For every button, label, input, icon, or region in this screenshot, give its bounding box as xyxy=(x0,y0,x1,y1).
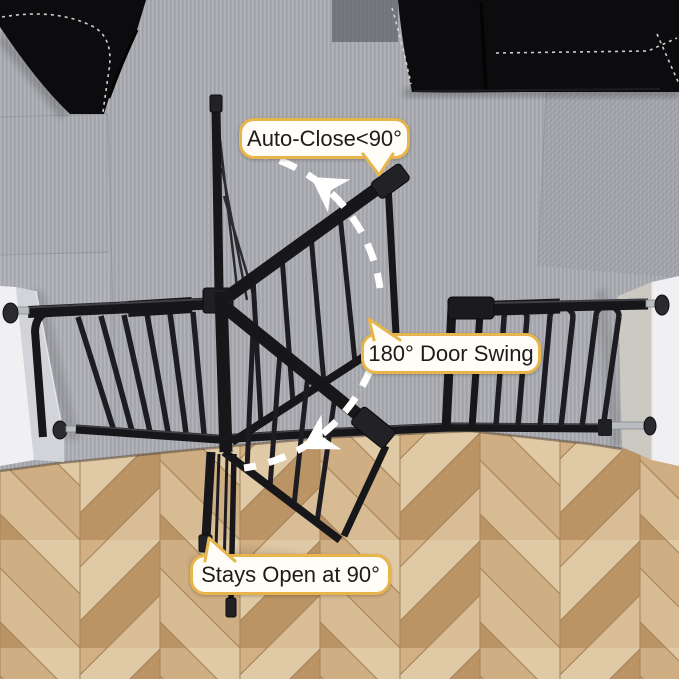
callout-tail-icon xyxy=(199,536,239,562)
door-up-end-cap xyxy=(210,95,222,112)
callout-stays-open: Stays Open at 90° xyxy=(190,554,391,595)
gate-right-pressure-knob xyxy=(655,295,669,315)
gate-left-bottom-knob xyxy=(53,421,67,439)
carpet-dark-tile-small xyxy=(332,0,398,42)
callout-door-swing-label: 180° Door Swing xyxy=(368,341,533,367)
sofa-top-right xyxy=(392,0,679,97)
gate-left-bottom-screw xyxy=(66,426,76,432)
door-90-near-stile xyxy=(206,452,211,538)
callout-auto-close: Auto-Close<90° xyxy=(239,118,410,159)
gate-left-pressure-knob xyxy=(3,303,18,323)
callout-tail-icon xyxy=(359,153,399,177)
gate-left-pressure-screw xyxy=(17,307,29,314)
door-90-far-cap xyxy=(226,598,236,617)
carpet-dark-tile-right xyxy=(538,84,679,278)
callout-auto-close-label: Auto-Close<90° xyxy=(247,126,402,152)
callout-stays-open-label: Stays Open at 90° xyxy=(201,562,380,588)
gate-latch-housing xyxy=(448,297,494,319)
gate-right-bottom-bracket xyxy=(598,419,612,436)
product-image: Auto-Close<90° 180° Door Swing Stays Ope… xyxy=(0,0,679,679)
sofa-right-body xyxy=(398,0,679,93)
callout-door-swing: 180° Door Swing xyxy=(361,333,541,374)
gate-left-rail-sleeve xyxy=(128,305,192,309)
callout-tail-icon xyxy=(368,315,408,341)
gate-right-bottom-knob xyxy=(644,417,656,435)
